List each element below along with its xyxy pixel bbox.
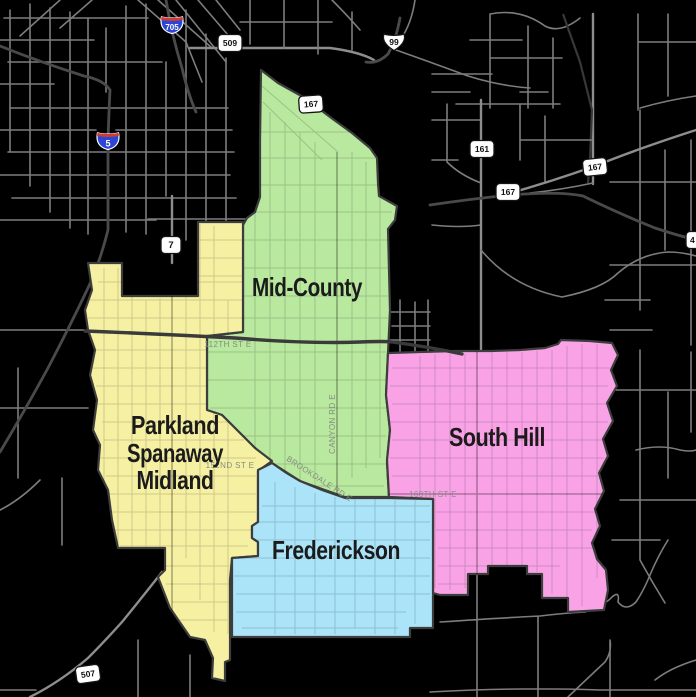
label-mid-county: Mid-County <box>252 272 363 302</box>
svg-text:507: 507 <box>80 668 96 680</box>
map: 112TH ST E CANYON RD E BROOKDALE RD E 16… <box>0 0 696 697</box>
svg-text:4: 4 <box>690 235 695 245</box>
label-parkland: Parkland <box>131 410 219 440</box>
road-label-160th-st-e: 160TH ST E <box>409 490 457 499</box>
label-spanaway: Spanaway <box>127 438 224 468</box>
sr-4-shield-partial: 4 <box>686 232 696 249</box>
svg-text:167: 167 <box>501 187 515 197</box>
sr-167-shield-north: 167 <box>298 95 323 114</box>
svg-text:167: 167 <box>304 98 319 109</box>
sr-7-shield: 7 <box>161 237 181 254</box>
map-canvas: 112TH ST E CANYON RD E BROOKDALE RD E 16… <box>0 0 696 697</box>
sr-167-shield-junction: 167 <box>496 184 520 201</box>
sr-161-shield: 161 <box>470 141 494 158</box>
svg-text:509: 509 <box>223 38 237 48</box>
sr-509-shield: 509 <box>218 35 242 52</box>
svg-text:99: 99 <box>389 37 399 47</box>
label-midland: Midland <box>137 465 214 495</box>
road-label-112th-st-e: 112TH ST E <box>204 340 251 349</box>
sr-167-shield-east: 167 <box>582 157 608 176</box>
sr-507-shield: 507 <box>75 664 101 684</box>
label-frederickson: Frederickson <box>272 535 400 565</box>
svg-text:167: 167 <box>587 161 602 172</box>
label-south-hill: South Hill <box>449 422 545 452</box>
svg-text:705: 705 <box>165 23 179 32</box>
svg-text:7: 7 <box>168 240 173 251</box>
road-label-canyon-rd-e: CANYON RD E <box>328 394 337 454</box>
svg-text:5: 5 <box>105 139 110 149</box>
svg-text:161: 161 <box>475 144 489 154</box>
